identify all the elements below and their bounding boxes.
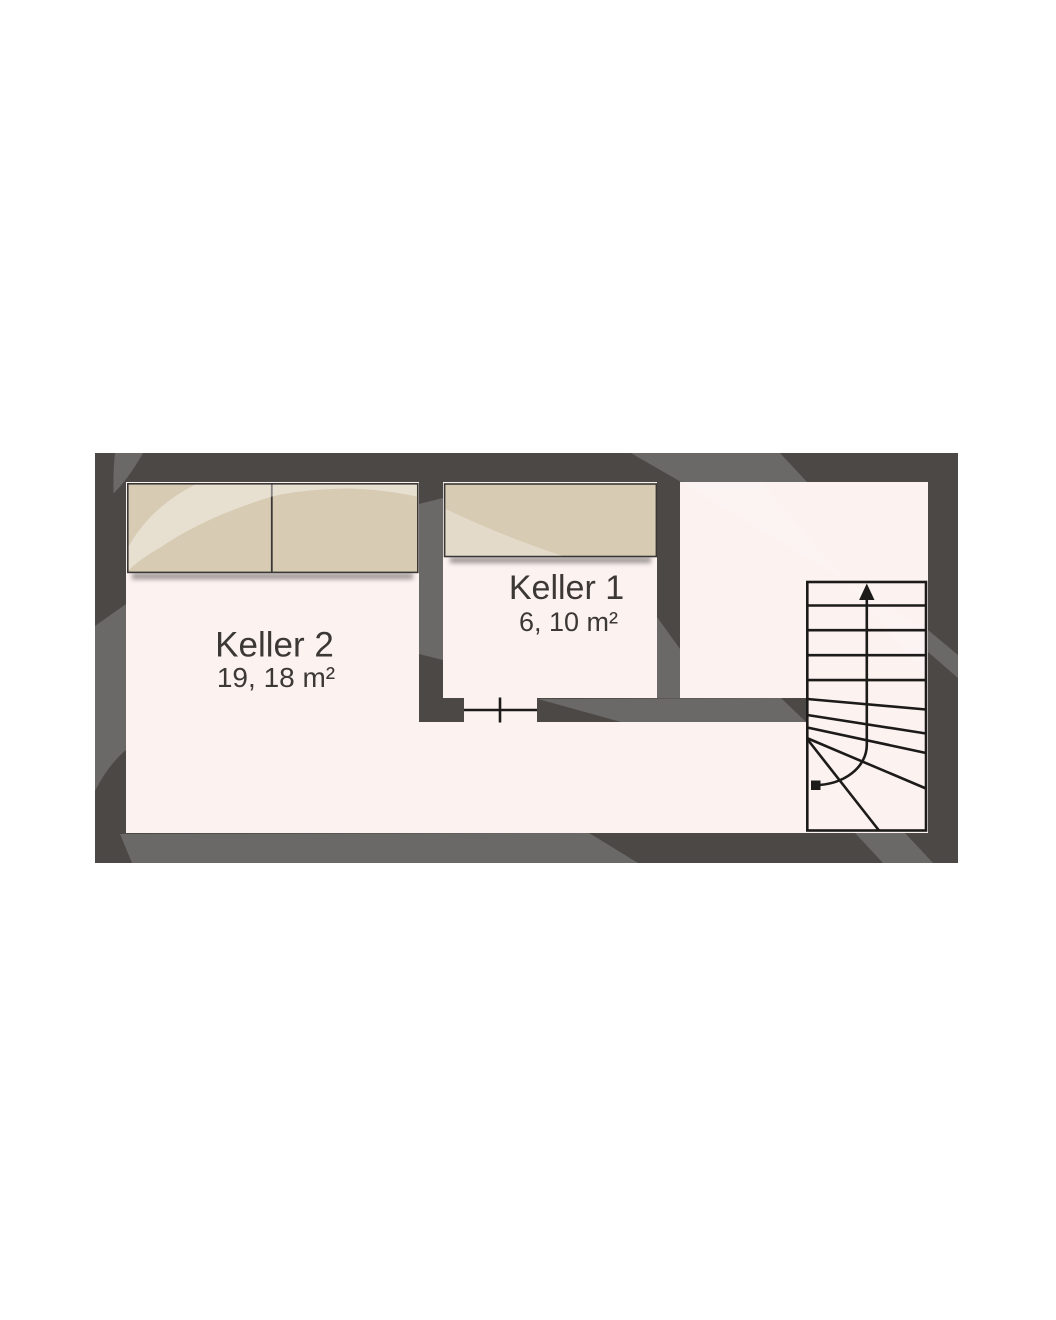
svg-text:19, 18 m²: 19, 18 m² bbox=[217, 662, 335, 693]
svg-text:Keller 1: Keller 1 bbox=[509, 569, 624, 607]
svg-text:Keller 2: Keller 2 bbox=[215, 625, 334, 664]
svg-text:6, 10 m²: 6, 10 m² bbox=[519, 607, 618, 637]
